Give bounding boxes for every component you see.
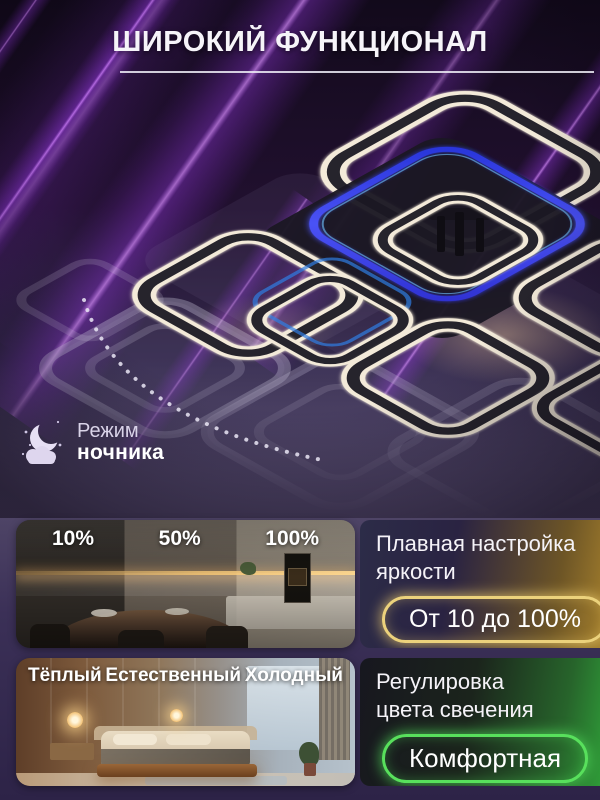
moon-icon [20,418,68,468]
brightness-panel: Плавная настройка яркости От 10 до 100% [360,520,600,648]
feature-row-brightness: 10% 50% 100% Плавная настройка яркости О… [16,520,600,648]
blanket [101,749,250,766]
bed-frame [97,764,256,777]
label-warm: Тёплый [28,665,102,687]
color-temperature-badge: Комфортная [382,734,588,783]
night-mode-line1: Режим [77,421,164,443]
page-title: ШИРОКИЙ ФУНКЦИОНАЛ [0,26,600,59]
color-temperature-panel: Регулировка цвета свечения Комфортная [360,658,600,786]
label-10: 10% [52,527,94,551]
bedside-lamp [67,712,83,728]
label-100: 100% [265,527,319,551]
bedroom-photo: Тёплый Естественный Холодный [16,658,355,786]
hero-section: ШИРОКИЙ ФУНКЦИОНАЛ [0,0,600,518]
label-cold: Холодный [245,665,343,687]
rug [145,776,287,785]
product-banner: ШИРОКИЙ ФУНКЦИОНАЛ [0,0,600,800]
nightstand [50,743,94,761]
feature-row-color-temperature: Тёплый Естественный Холодный Регулировка… [16,658,600,786]
pillow [166,734,211,746]
pillow [113,734,158,746]
title-underline [120,71,594,73]
bed [101,731,250,766]
kitchen-photo: 10% 50% 100% [16,520,355,648]
brightness-labels: 10% 50% 100% [16,527,355,551]
plant-pot [304,763,316,776]
bedroom-plant [299,742,319,766]
brightness-heading: Плавная настройка яркости [376,530,594,585]
label-natural: Естественный [105,665,241,687]
night-mode-line2: ночника [77,442,164,465]
brightness-badge: От 10 до 100% [382,596,600,643]
night-mode-label: Режим ночника [20,418,164,468]
features-section: 10% 50% 100% Плавная настройка яркости О… [0,518,600,800]
temperature-labels: Тёплый Естественный Холодный [16,665,355,687]
label-50: 50% [159,527,201,551]
color-temperature-heading: Регулировка цвета свечения [376,668,594,723]
